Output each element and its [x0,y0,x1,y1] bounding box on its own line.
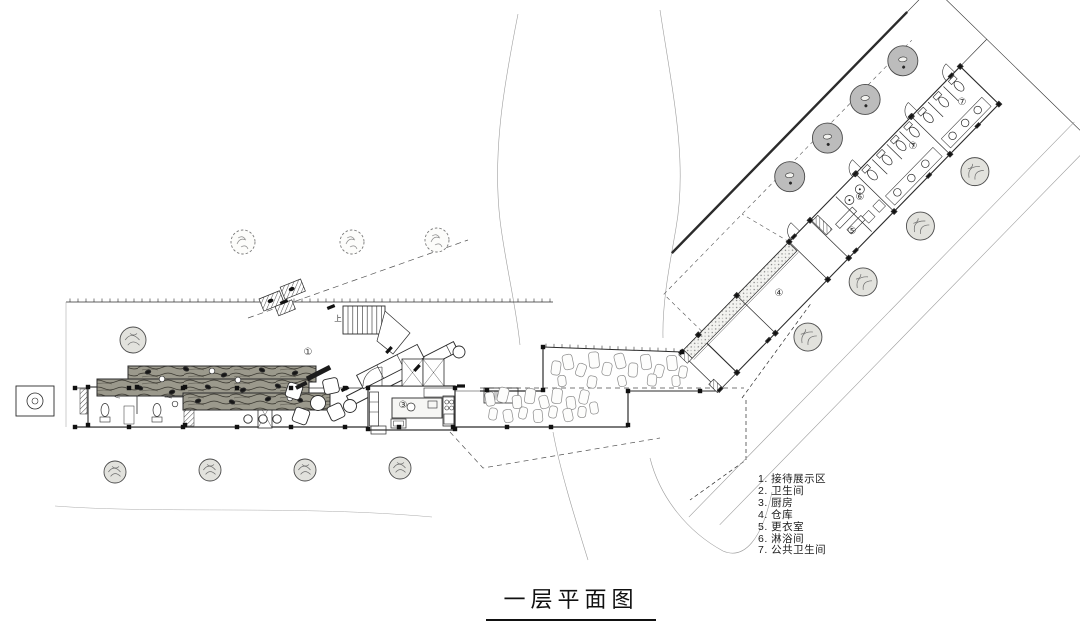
plan-title: 一层平面图 [486,582,656,621]
legend-item-4: 4. 仓库 [758,510,826,522]
label-stair-up: 上 [334,314,342,323]
legend-item-5: 5. 更衣室 [758,522,826,534]
stepping-stones [484,352,688,424]
floor-plan-svg: ① ③ ④ ⑤ ⑥ ⑦ ⑦ 上 [0,0,1080,623]
right-building [670,57,1002,394]
terrain-lines [55,10,772,560]
label-public-toilet-a: ⑦ [909,141,918,152]
legend-item-3: 3. 厨房 [758,498,826,510]
label-kitchen: ③ [399,400,408,411]
legend-item-7: 7. 公共卫生间 [758,545,826,557]
staircase [343,306,410,354]
label-changing: ⑤ [848,226,857,237]
floor-plan-page: ① ③ ④ ⑤ ⑥ ⑦ ⑦ 上 1. 接待展示区 2. 卫生间 3. 厨房 4.… [0,0,1080,623]
left-site-boundary [66,240,660,468]
label-storage: ④ [775,288,784,299]
stone-bench [258,279,310,320]
label-reception: ① [304,347,313,358]
canopy-tick-marks [70,299,550,303]
right-site [548,0,1080,543]
label-public-toilet-b: ⑦ [958,97,967,108]
label-shower: ⑥ [856,192,865,203]
legend: 1. 接待展示区 2. 卫生间 3. 厨房 4. 仓库 5. 更衣室 6. 淋浴… [758,474,826,557]
